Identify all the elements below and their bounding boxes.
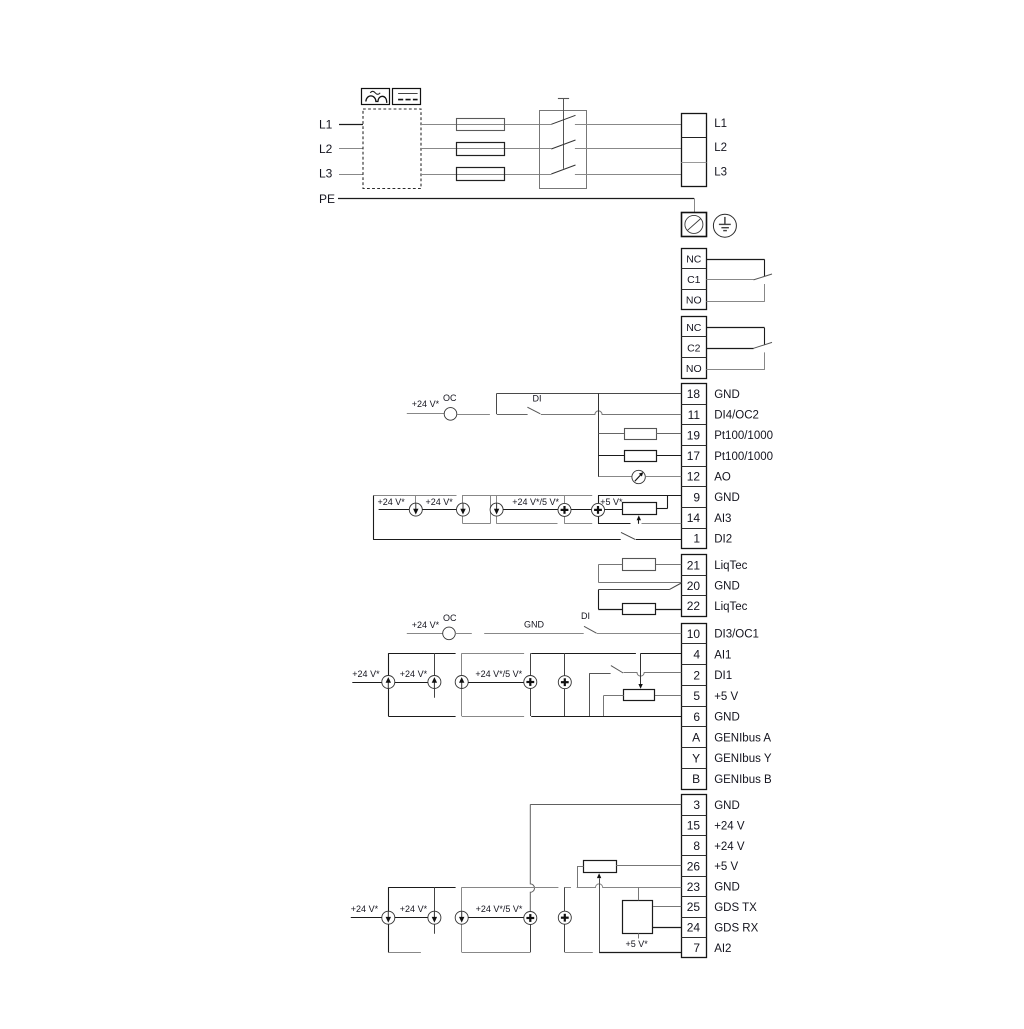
svg-text:Pt100/1000: Pt100/1000: [714, 430, 773, 442]
svg-text:8: 8: [693, 839, 700, 853]
svg-text:Y: Y: [692, 751, 700, 765]
svg-text:GND: GND: [714, 492, 740, 504]
svg-text:NO: NO: [686, 363, 702, 375]
svg-text:9: 9: [693, 490, 700, 504]
svg-text:GND: GND: [714, 581, 740, 593]
svg-text:24: 24: [687, 921, 701, 935]
svg-text:+24 V*: +24 V*: [351, 904, 379, 914]
svg-text:OC: OC: [443, 393, 457, 403]
svg-text:20: 20: [687, 579, 701, 593]
svg-text:DI: DI: [533, 394, 542, 404]
svg-text:L3: L3: [714, 166, 727, 178]
svg-text:+24 V*: +24 V*: [412, 399, 440, 409]
svg-text:AO: AO: [714, 472, 731, 484]
svg-text:NC: NC: [686, 253, 702, 265]
svg-text:25: 25: [687, 900, 701, 914]
svg-text:AI1: AI1: [714, 649, 731, 661]
svg-text:NC: NC: [686, 322, 702, 334]
svg-text:1: 1: [693, 532, 700, 546]
svg-text:+24 V: +24 V: [714, 820, 745, 832]
svg-text:LiqTec: LiqTec: [714, 601, 747, 613]
svg-text:10: 10: [687, 627, 701, 641]
svg-text:+24 V*: +24 V*: [400, 669, 428, 679]
svg-text:12: 12: [687, 470, 701, 484]
svg-text:2: 2: [693, 668, 700, 682]
svg-text:C2: C2: [687, 342, 701, 354]
svg-text:DI3/OC1: DI3/OC1: [714, 629, 759, 641]
svg-text:17: 17: [687, 449, 701, 463]
svg-text:AI2: AI2: [714, 943, 731, 955]
svg-text:5: 5: [693, 689, 700, 703]
svg-text:DI: DI: [581, 611, 590, 621]
svg-text:L3: L3: [319, 167, 333, 181]
svg-text:GND: GND: [714, 712, 740, 724]
svg-text:26: 26: [687, 859, 701, 873]
svg-text:GENIbus B: GENIbus B: [714, 774, 772, 786]
svg-text:4: 4: [693, 648, 700, 662]
svg-text:21: 21: [687, 558, 701, 572]
svg-text:GENIbus A: GENIbus A: [714, 732, 771, 744]
svg-text:7: 7: [693, 941, 700, 955]
svg-text:3: 3: [693, 798, 700, 812]
svg-text:AI3: AI3: [714, 513, 731, 525]
svg-text:GENIbus Y: GENIbus Y: [714, 753, 772, 765]
svg-text:+5 V*: +5 V*: [626, 939, 649, 949]
svg-text:GND: GND: [524, 619, 545, 629]
svg-text:18: 18: [687, 387, 701, 401]
svg-text:6: 6: [693, 710, 700, 724]
svg-text:+5 V: +5 V: [714, 691, 738, 703]
svg-text:LiqTec: LiqTec: [714, 560, 747, 572]
svg-text:+24 V: +24 V: [714, 841, 745, 853]
svg-text:Pt100/1000: Pt100/1000: [714, 451, 773, 463]
svg-text:GDS RX: GDS RX: [714, 922, 758, 934]
svg-text:+24 V*: +24 V*: [412, 620, 440, 630]
svg-text:A: A: [692, 731, 700, 745]
svg-text:GND: GND: [714, 389, 740, 401]
svg-text:19: 19: [687, 428, 701, 442]
svg-text:+24 V*: +24 V*: [426, 497, 454, 507]
svg-text:DI2: DI2: [714, 534, 732, 546]
svg-text:+24 V*: +24 V*: [400, 904, 428, 914]
svg-text:GDS TX: GDS TX: [714, 902, 757, 914]
svg-text:DI4/OC2: DI4/OC2: [714, 410, 759, 422]
svg-text:GND: GND: [714, 800, 740, 812]
svg-text:L2: L2: [319, 142, 333, 156]
svg-text:DI1: DI1: [714, 670, 732, 682]
svg-text:C1: C1: [687, 274, 701, 286]
svg-text:+24 V*/5 V*: +24 V*/5 V*: [475, 669, 522, 679]
svg-text:+24 V*/5 V*: +24 V*/5 V*: [476, 904, 523, 914]
svg-text:11: 11: [688, 408, 701, 422]
svg-text:L1: L1: [319, 117, 333, 131]
svg-text:+5 V*: +5 V*: [600, 497, 623, 507]
svg-text:L1: L1: [714, 118, 727, 130]
svg-text:PE: PE: [319, 192, 335, 206]
svg-text:OC: OC: [443, 613, 457, 623]
svg-text:+24 V*: +24 V*: [352, 669, 380, 679]
svg-text:NO: NO: [686, 295, 702, 307]
svg-text:+24 V*/5 V*: +24 V*/5 V*: [512, 497, 559, 507]
svg-text:15: 15: [687, 819, 701, 833]
svg-text:22: 22: [687, 599, 701, 613]
svg-text:+5 V: +5 V: [714, 861, 738, 873]
svg-text:14: 14: [687, 511, 701, 525]
svg-text:23: 23: [687, 880, 701, 894]
svg-text:B: B: [692, 772, 700, 786]
svg-text:+24 V*: +24 V*: [378, 497, 406, 507]
svg-text:GND: GND: [714, 882, 740, 894]
svg-text:L2: L2: [714, 142, 727, 154]
